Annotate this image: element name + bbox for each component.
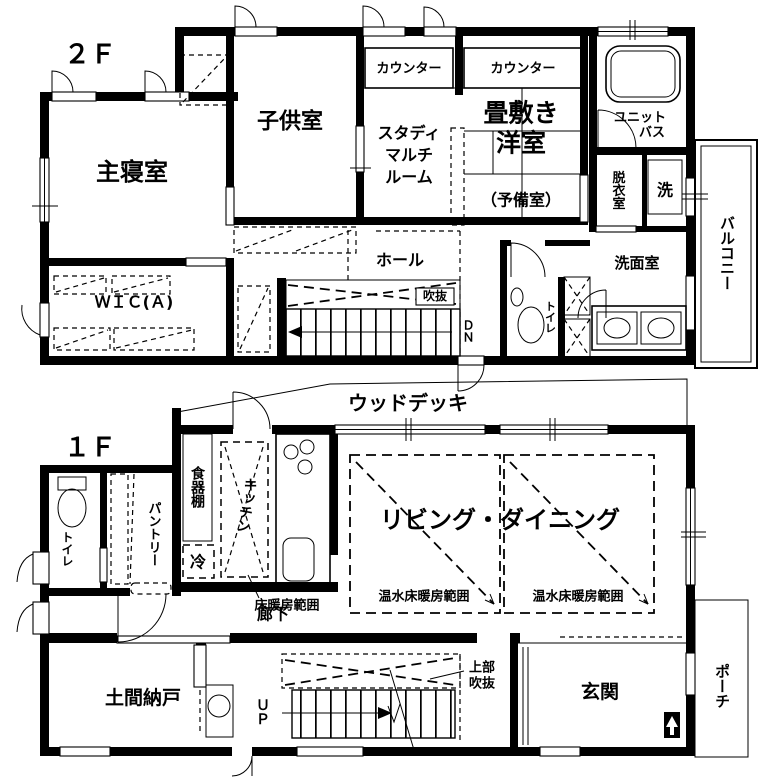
label-up: ＵＰ	[254, 698, 270, 726]
room-label-toilet-1f: トイレ	[60, 531, 74, 567]
label-washer: 洗	[657, 181, 673, 200]
upper-void-leader	[430, 671, 464, 679]
label-wood-deck: ウッドデッキ	[348, 391, 468, 415]
bathtub	[606, 46, 680, 102]
label-counter-study: カウンター	[376, 62, 441, 77]
tatami-closet-dashed	[451, 128, 464, 225]
label-upper-void-2: 吹抜	[469, 676, 496, 692]
stairs-2f	[286, 309, 460, 356]
floor-plan-image: ２Ｆ 主寝室 子供室 カウンター カウンター スタディ マルチ ルーム 畳敷き …	[0, 0, 784, 784]
label-cupboard: 食器棚	[189, 465, 206, 509]
room-label-tatami-2: 洋室	[496, 129, 546, 158]
room-label-doma: 土間納戸	[105, 686, 181, 709]
label-counter-tatami: カウンター	[490, 62, 555, 77]
room-label-balcony: バルコニー	[718, 216, 736, 291]
floor-plan-1f: １Ｆ ウッドデッキ 食器棚 キッチン 冷 パントリー トイレ 廊下 床暖房範囲 …	[17, 379, 748, 776]
entrance-step-marker	[664, 712, 680, 738]
toilet-fixture-2f	[511, 288, 544, 343]
room-label-washroom: 洗面室	[614, 254, 659, 272]
room-label-master: 主寝室	[96, 158, 168, 186]
label-fridge: 冷	[190, 553, 206, 572]
label-upper-void-1: 上部	[469, 660, 495, 676]
room-label-study-2: マルチ	[385, 146, 433, 165]
deck-door-arc	[233, 392, 270, 429]
room-label-tatami-3: （予備室）	[481, 191, 561, 210]
room-label-unitbath-1: ユニット	[614, 111, 666, 126]
floor-heating-boxes	[350, 455, 684, 637]
room-label-living: リビング・ダイニング	[380, 506, 620, 534]
kitchen-fixtures	[183, 434, 330, 598]
label-hot-water-left: 温水床暖房範囲	[378, 589, 469, 605]
floor-label-2f: ２Ｆ	[64, 40, 116, 70]
label-down: ＤＮ	[461, 319, 475, 343]
room-label-wic: ＷＩＣ(Ａ)	[95, 293, 174, 312]
room-label-porch: ポーチ	[713, 664, 731, 709]
room-label-toilet-2f: トイレ	[544, 301, 557, 334]
label-hot-water-right: 温水床暖房範囲	[532, 589, 623, 605]
room-label-tatami-1: 畳敷き	[483, 99, 558, 128]
washbasin-nook	[206, 685, 233, 737]
pipe-shafts	[564, 277, 590, 357]
room-label-unitbath-2: バス	[639, 126, 665, 141]
floor-label-1f: １Ｆ	[64, 433, 116, 463]
label-pantry: パントリー	[146, 502, 162, 567]
room-label-study-3: ルーム	[385, 168, 433, 187]
room-label-study-1: スタディ	[378, 124, 441, 143]
label-floor-heating: 床暖房範囲	[254, 598, 319, 614]
kitchen-counter	[276, 434, 330, 588]
stairs-1f	[282, 654, 464, 750]
room-label-entrance: 玄関	[581, 680, 619, 703]
room-label-dressing: 脱衣室	[610, 170, 626, 211]
room-label-hall: ホール	[376, 251, 424, 270]
room-label-kids: 子供室	[257, 109, 323, 135]
floor-plan-2f: ２Ｆ 主寝室 子供室 カウンター カウンター スタディ マルチ ルーム 畳敷き …	[22, 6, 757, 391]
toilet-fixture-1f	[58, 477, 86, 527]
pantry-shelves	[111, 474, 134, 584]
toilet-door-arc	[511, 243, 545, 277]
label-void-2f: 吹抜	[423, 288, 448, 303]
kitchen-sink	[283, 538, 314, 581]
entrance-door	[686, 653, 695, 695]
back-door-arc	[232, 756, 252, 776]
